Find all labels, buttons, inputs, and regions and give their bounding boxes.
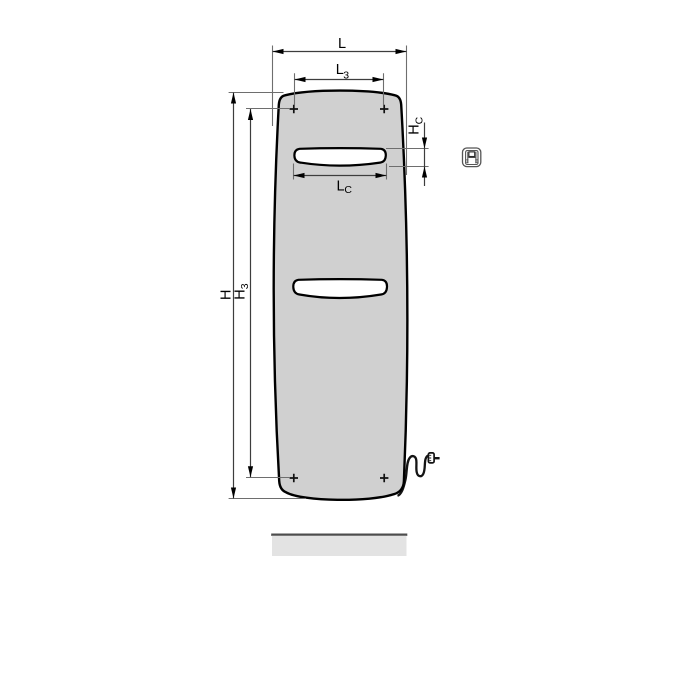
svg-text:H3: H3 xyxy=(232,283,251,299)
svg-text:3: 3 xyxy=(343,69,349,81)
svg-text:L: L xyxy=(337,178,345,194)
svg-text:C: C xyxy=(344,184,352,196)
svg-text:HC: HC xyxy=(407,116,426,134)
svg-text:L: L xyxy=(338,36,346,52)
